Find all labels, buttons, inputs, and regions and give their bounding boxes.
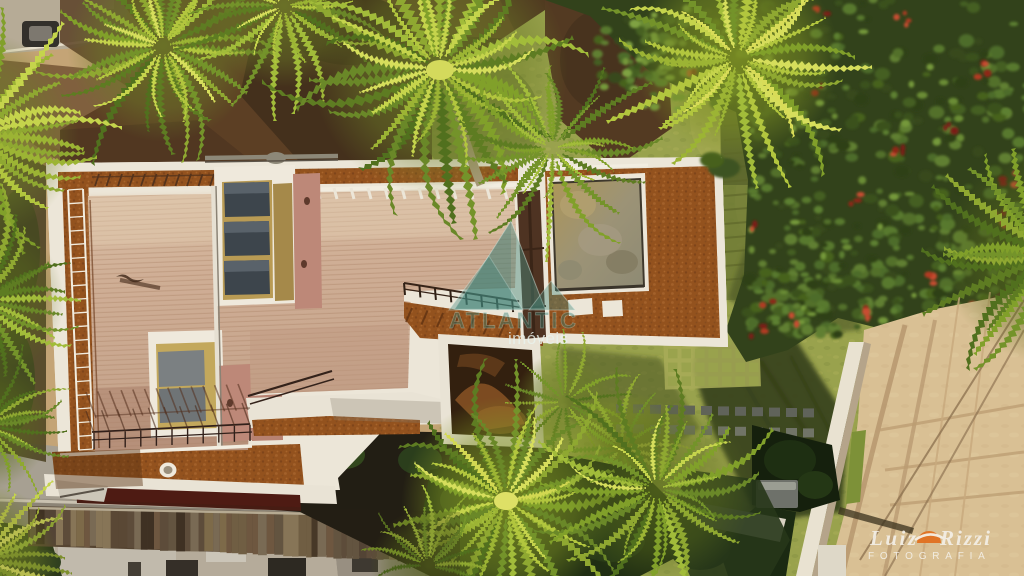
svg-text:imóveis: imóveis (508, 329, 568, 348)
svg-text:Luiz: Luiz (869, 526, 917, 550)
svg-text:FOTOGRAFIA: FOTOGRAFIA (868, 551, 988, 562)
